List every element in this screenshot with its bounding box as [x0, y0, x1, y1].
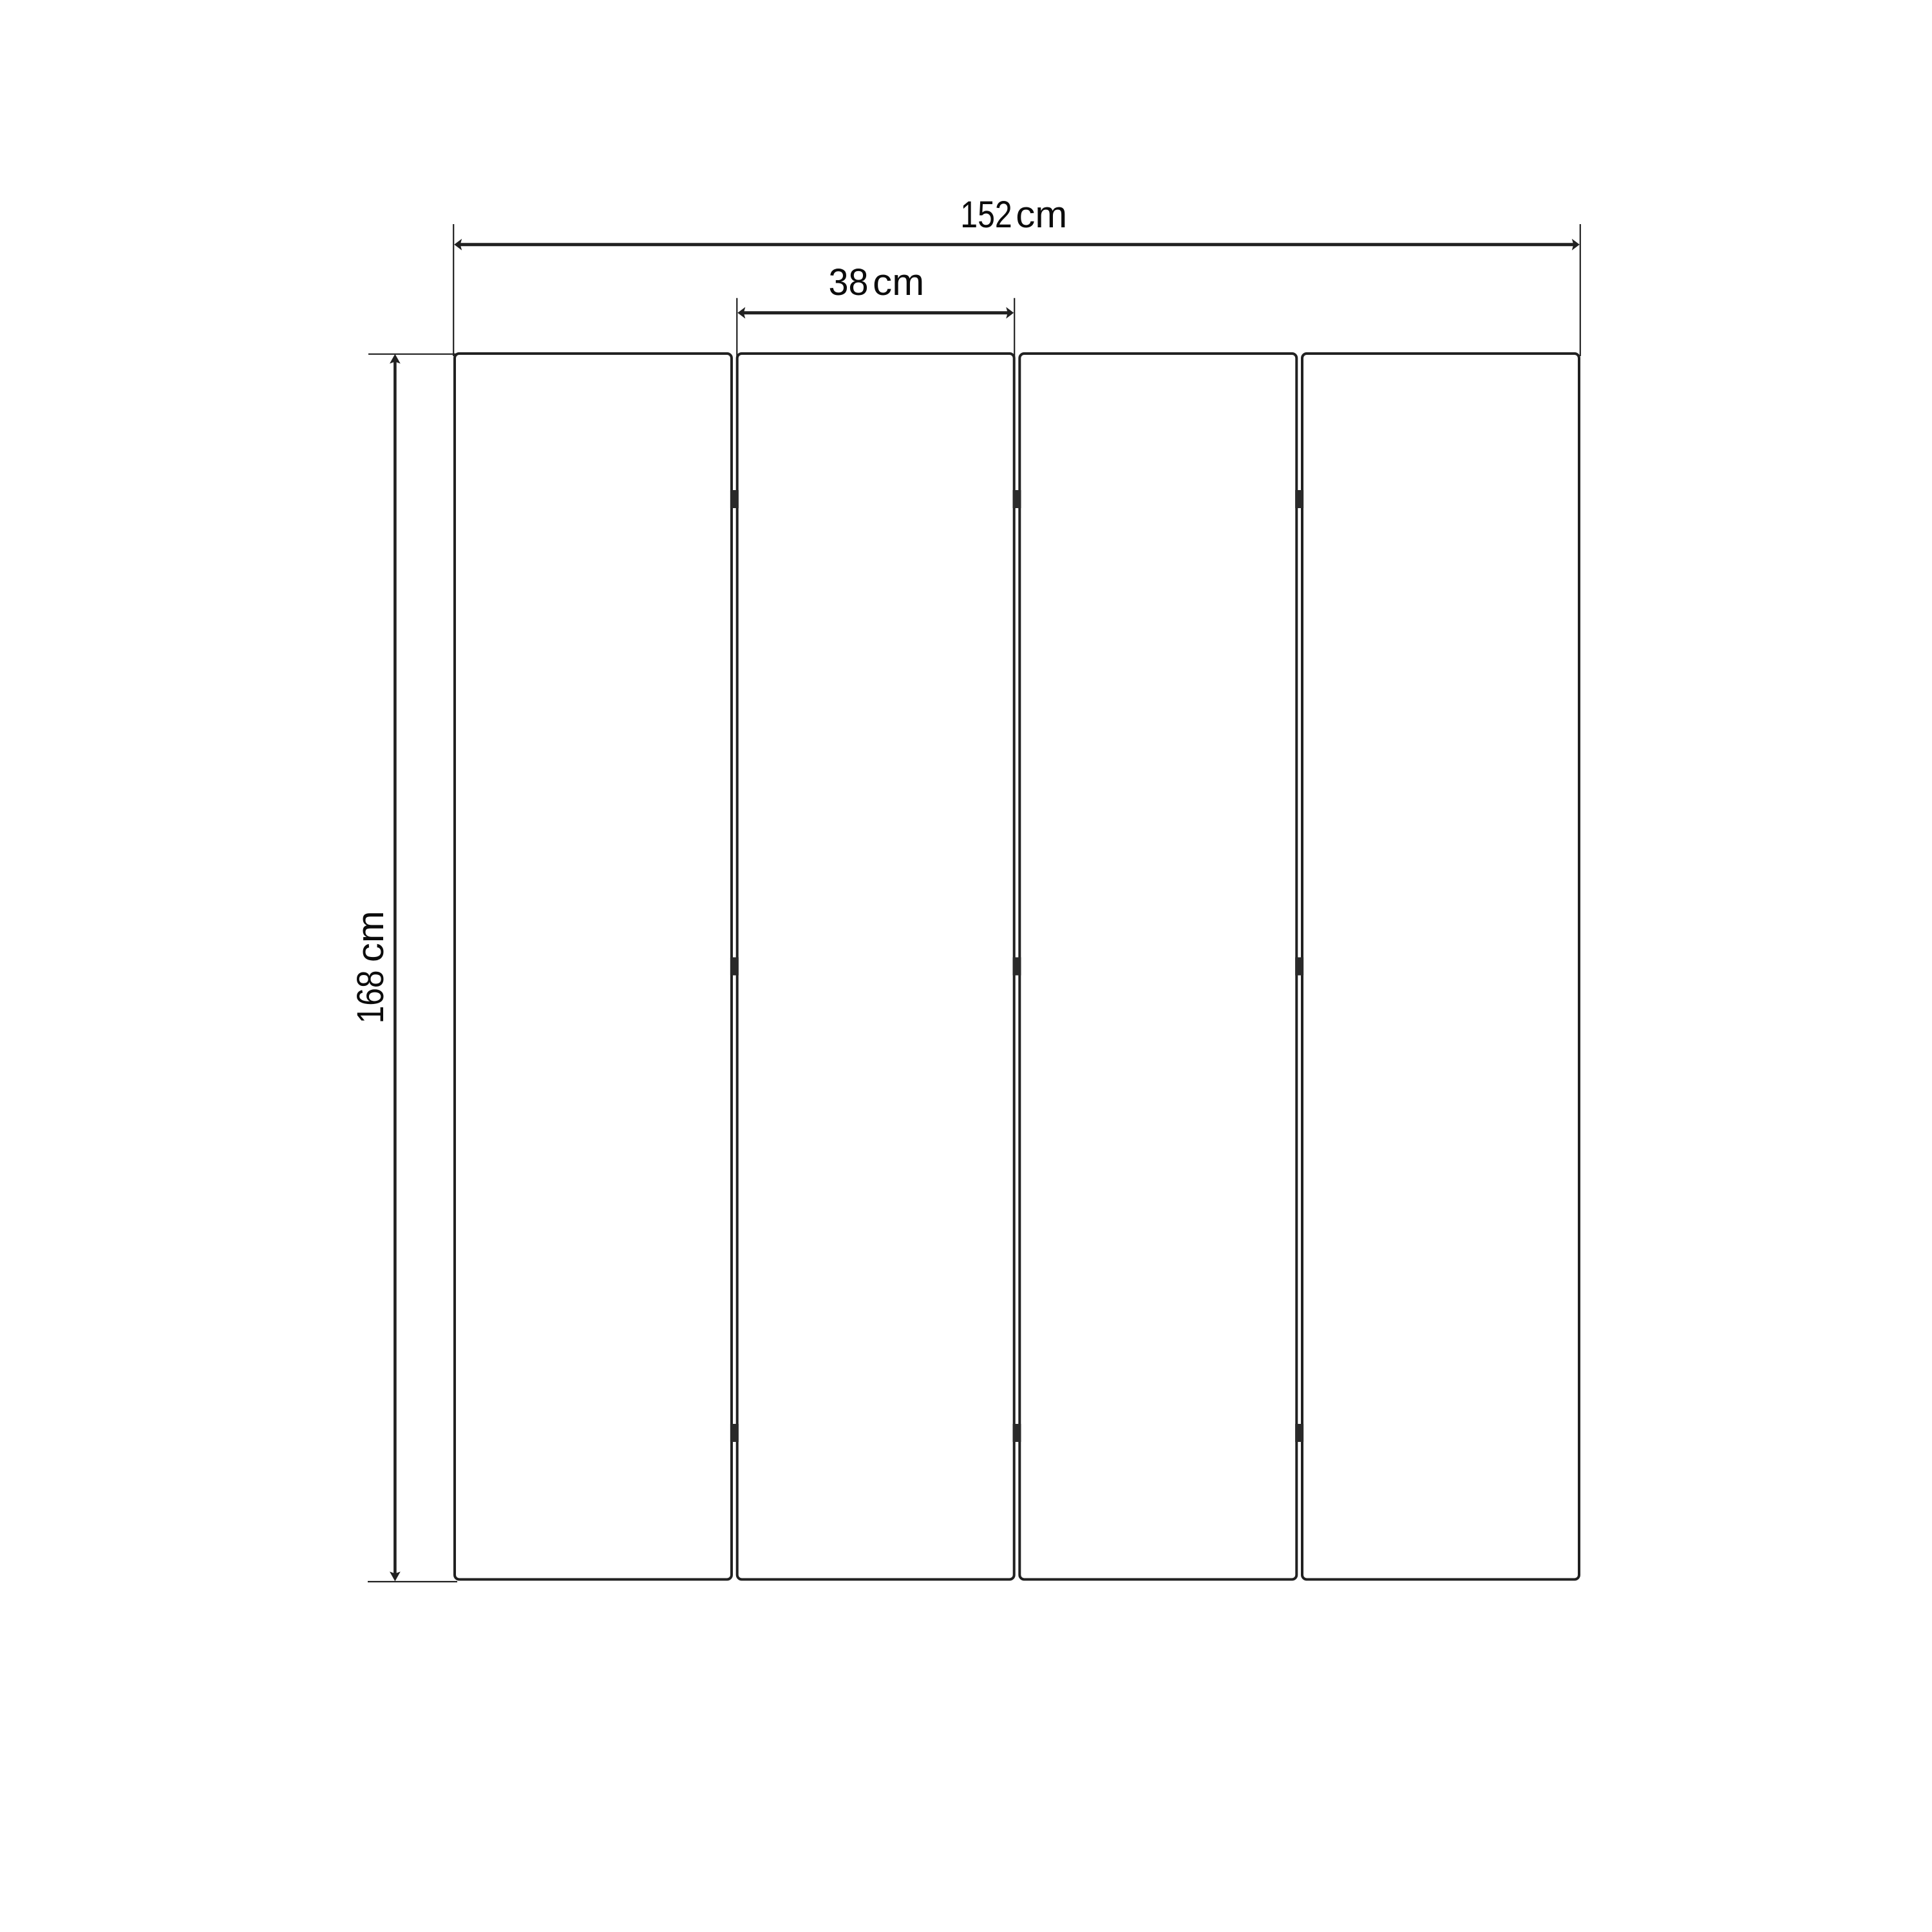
svg-text:cm: cm — [1016, 194, 1067, 236]
svg-text:38: 38 — [829, 261, 869, 303]
svg-text:cm: cm — [350, 911, 392, 962]
svg-text:cm: cm — [873, 261, 924, 303]
svg-text:168: 168 — [350, 970, 392, 1023]
svg-text:152: 152 — [960, 194, 1012, 236]
